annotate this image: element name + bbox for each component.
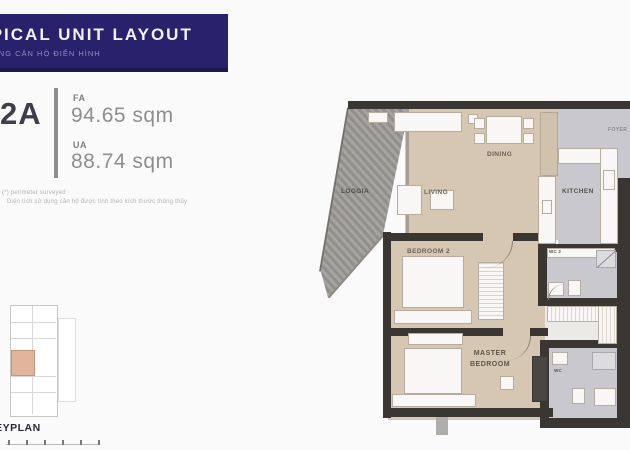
masterwc-sink [552, 352, 568, 365]
dining-chair [523, 118, 534, 129]
master-bed [404, 348, 462, 394]
sofa [394, 112, 462, 132]
master-chair [500, 376, 514, 390]
master-nightstands [392, 394, 476, 407]
kitchen-sink [542, 200, 552, 214]
fa-value: 94.65 sqm [71, 104, 174, 128]
keyplan [2, 300, 82, 425]
keyplan-unit-highlight [11, 350, 35, 376]
wall-stub-below [436, 417, 448, 435]
ua-value: 88.74 sqm [71, 150, 174, 174]
room-label-dining: DINING [487, 151, 512, 158]
wall-bed2-master-stub [530, 328, 548, 336]
room-label-wc2: WC 2 [549, 249, 561, 254]
masterwc-shower [592, 352, 616, 370]
kitchen-counter-right [600, 148, 618, 244]
dining-chair [523, 133, 534, 144]
masterwc-toilet [572, 388, 585, 404]
ac-unit [368, 112, 388, 123]
tall-cabinet [540, 112, 558, 176]
room-label-kitchen: KITCHEN [562, 188, 594, 195]
wall-wc2-left [538, 244, 547, 306]
room-label-masterwc: WC [554, 368, 562, 373]
unit-code: 2A [0, 96, 42, 132]
wardrobe-bed2 [478, 262, 504, 320]
master-wardrobe [532, 356, 548, 402]
floorplan-page: { "header": { "title": "TYPICAL UNIT LAY… [0, 0, 630, 450]
keyplan-label: KEYPLAN [0, 422, 41, 434]
header-banner: TYPICAL UNIT LAYOUT MẶT BẰNG CĂN HỘ ĐIỂN… [0, 14, 228, 72]
wc2-toilet [568, 280, 581, 296]
divider [54, 88, 58, 178]
wall-living-bed2 [383, 233, 483, 241]
bed2-headboard [394, 310, 472, 324]
page-subtitle: MẶT BẰNG CĂN HỘ ĐIỂN HÌNH [0, 49, 228, 58]
room-label-bedroom2: BEDROOM 2 [407, 248, 450, 255]
note-line-1: (*) perimeter surveyed [2, 190, 66, 196]
room-label-loggia: LOGGIA [341, 188, 369, 195]
scale-bar [6, 444, 100, 445]
built-in-closet-corner [598, 306, 617, 344]
bed2 [402, 256, 464, 308]
room-label-master: MASTER BEDROOM [462, 348, 518, 370]
wall-left [383, 232, 391, 418]
dining-table [486, 116, 522, 144]
wall-masterwc-bottom [540, 418, 630, 428]
page-title: TYPICAL UNIT LAYOUT [0, 25, 228, 45]
room-label-living: LIVING [424, 189, 448, 196]
tv-console [397, 185, 422, 215]
wall-master-bottom [383, 408, 553, 417]
stove [603, 170, 615, 190]
dining-chair [474, 118, 485, 129]
wall-top [348, 101, 630, 109]
fa-label: FA [73, 93, 86, 103]
masterwc-shower-tray [594, 388, 616, 406]
room-label-foyer: FOYER [608, 127, 627, 133]
wall-right [617, 178, 630, 428]
built-in-closet [547, 306, 599, 322]
keyplan-wing-outline [58, 318, 76, 402]
dining-chair [474, 133, 485, 144]
ua-label: UA [73, 140, 87, 150]
master-dresser [408, 333, 463, 345]
note-line-2: Diện tích sử dụng căn hộ được tính theo … [7, 199, 187, 205]
